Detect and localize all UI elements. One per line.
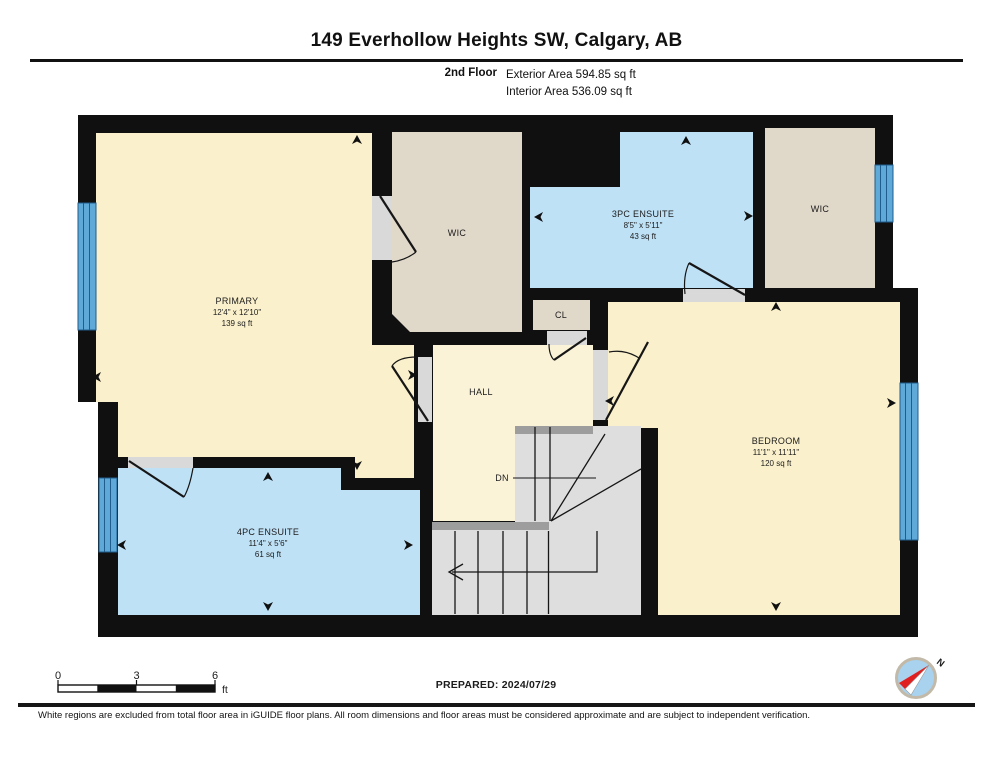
scale-ticks [58, 680, 215, 685]
wic-left-label: WIC [448, 228, 467, 238]
scale-bar: 0 3 6 ft [55, 670, 228, 696]
hall-label: HALL [469, 387, 493, 397]
closet-door-sill [547, 331, 587, 345]
stair-nosing-upper [515, 426, 593, 434]
ensuite-3pc-label: 3PC ENSUITE [612, 209, 674, 219]
compass-icon: N [897, 657, 947, 698]
bedroom-door-jamb [593, 350, 608, 420]
wic-right-window [875, 165, 893, 222]
stairs-dn-label: DN [495, 473, 509, 483]
scale-bar-segment-1 [97, 685, 136, 692]
ensuite-3pc-area: 43 sq ft [630, 232, 657, 241]
compass-north-label: N [934, 657, 946, 670]
wic-left-door-jamb [372, 196, 392, 260]
primary-area: 139 sq ft [222, 319, 253, 328]
bedroom-window [900, 383, 918, 540]
primary-dims: 12'4" x 12'10" [213, 308, 261, 317]
floor-plan-page: 149 Everhollow Heights SW, Calgary, AB 2… [0, 0, 993, 768]
ensuite-4pc-window [99, 478, 117, 552]
ensuite-4pc-area: 61 sq ft [255, 550, 282, 559]
floor-plan-canvas: PRIMARY 12'4" x 12'10" 139 sq ft WIC 3PC… [0, 0, 993, 768]
footer-divider [18, 703, 975, 707]
bedroom-label: BEDROOM [752, 436, 801, 446]
primary-label: PRIMARY [216, 296, 259, 306]
stair-nosing-lower [432, 522, 549, 530]
ensuite-4pc-label: 4PC ENSUITE [237, 527, 299, 537]
ensuite-4pc-dims: 11'4" x 5'6" [249, 539, 288, 548]
prepared-date: PREPARED: 2024/07/29 [436, 679, 557, 691]
closet-label: CL [555, 310, 567, 320]
wic-right-label: WIC [811, 204, 830, 214]
primary-door-jamb [418, 357, 432, 422]
bedroom-dims: 11'1" x 11'11" [753, 448, 800, 457]
disclaimer-text: White regions are excluded from total fl… [38, 710, 968, 721]
scale-bar-segment-2 [176, 685, 215, 692]
ensuite-3pc-dims: 8'5" x 5'11" [624, 221, 663, 230]
scale-unit: ft [222, 684, 228, 696]
primary-window [78, 203, 96, 330]
bedroom-area: 120 sq ft [761, 459, 792, 468]
